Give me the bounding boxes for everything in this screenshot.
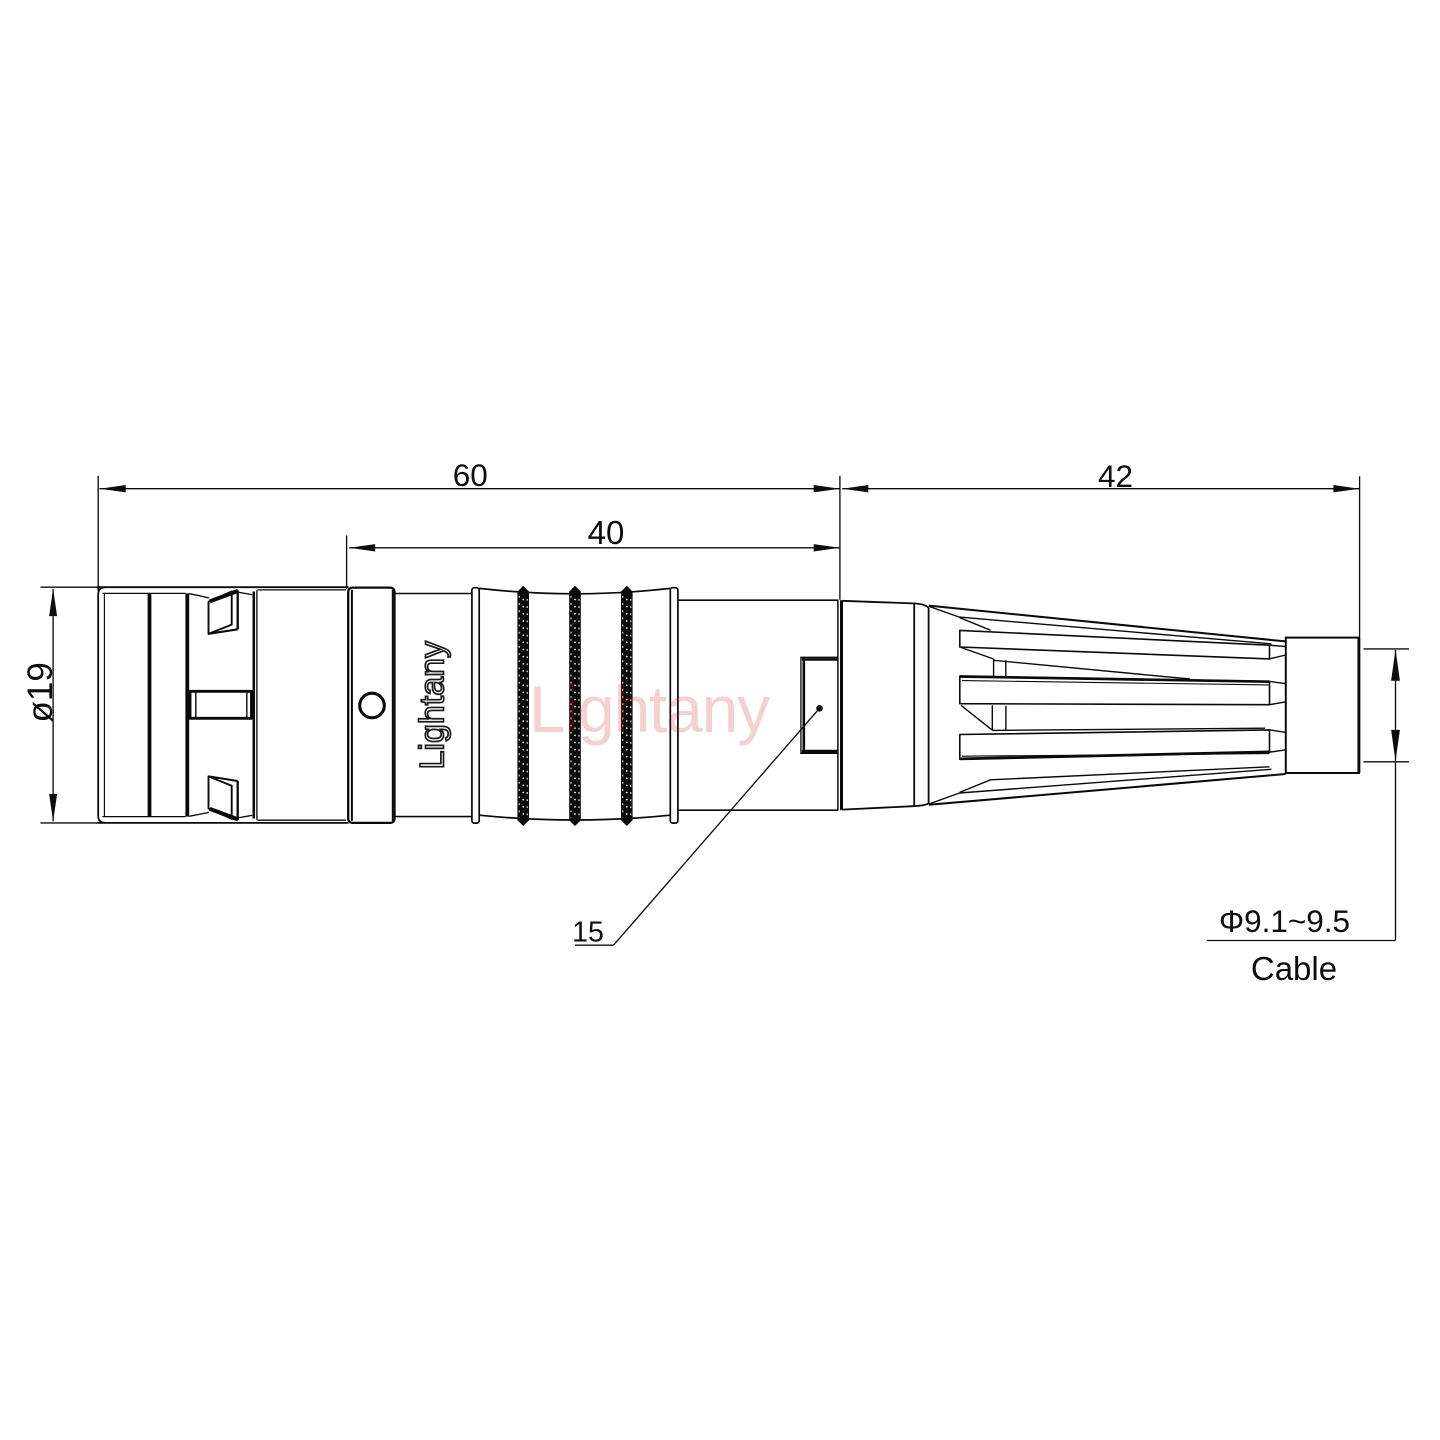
svg-text:Cable: Cable bbox=[1251, 950, 1337, 987]
svg-text:42: 42 bbox=[1098, 458, 1133, 494]
svg-text:15: 15 bbox=[572, 917, 604, 949]
svg-text:Lightany: Lightany bbox=[414, 641, 452, 770]
svg-text:40: 40 bbox=[588, 514, 625, 551]
svg-text:60: 60 bbox=[453, 457, 488, 493]
svg-text:Φ9.1~9.5: Φ9.1~9.5 bbox=[1219, 903, 1350, 939]
svg-text:Lightany: Lightany bbox=[529, 672, 770, 746]
svg-text:ø19: ø19 bbox=[21, 662, 60, 722]
